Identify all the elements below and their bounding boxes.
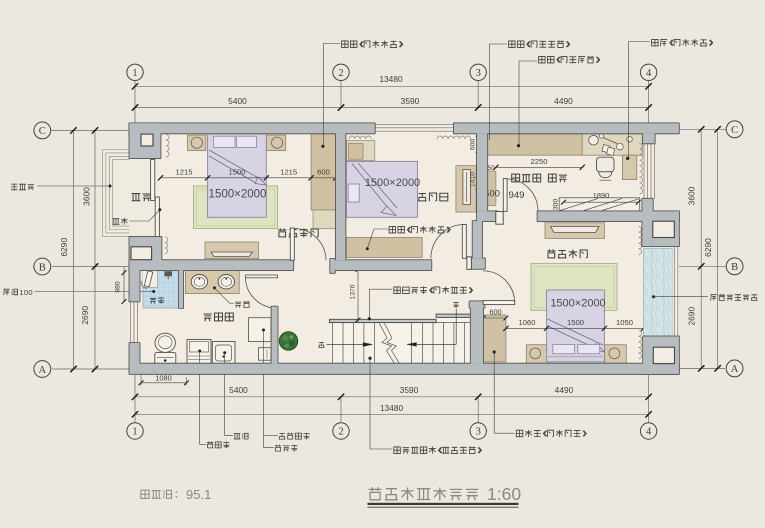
svg-text:13480: 13480 bbox=[380, 403, 404, 413]
svg-text:1370: 1370 bbox=[350, 284, 357, 299]
svg-text:2: 2 bbox=[338, 427, 343, 438]
svg-text:3: 3 bbox=[476, 68, 481, 79]
svg-text:600: 600 bbox=[469, 139, 476, 151]
svg-text:3600: 3600 bbox=[687, 186, 697, 205]
svg-text:6290: 6290 bbox=[703, 238, 713, 257]
svg-text:A: A bbox=[731, 364, 739, 375]
svg-text:1215: 1215 bbox=[176, 168, 193, 177]
svg-text:4490: 4490 bbox=[554, 96, 573, 106]
svg-text:1215: 1215 bbox=[280, 168, 297, 177]
svg-text:0: 0 bbox=[28, 288, 32, 297]
svg-text:3590: 3590 bbox=[401, 96, 420, 106]
svg-text:1500×2000: 1500×2000 bbox=[365, 177, 420, 189]
svg-text:6290: 6290 bbox=[59, 238, 69, 257]
svg-text:600: 600 bbox=[317, 168, 330, 177]
svg-text:1410: 1410 bbox=[469, 172, 476, 187]
svg-text:B: B bbox=[731, 262, 738, 273]
svg-text:1500×2000: 1500×2000 bbox=[209, 189, 267, 201]
svg-text:2690: 2690 bbox=[80, 306, 90, 325]
svg-text:4: 4 bbox=[646, 427, 652, 438]
svg-text:B: B bbox=[39, 262, 46, 273]
svg-text:1500×2000: 1500×2000 bbox=[550, 298, 605, 310]
svg-text:5400: 5400 bbox=[228, 96, 247, 106]
svg-text:880: 880 bbox=[115, 281, 122, 293]
svg-text:2690: 2690 bbox=[687, 307, 697, 326]
svg-text:600: 600 bbox=[489, 308, 501, 317]
svg-text:1890: 1890 bbox=[593, 191, 609, 200]
svg-text:1500: 1500 bbox=[567, 318, 584, 327]
svg-text:1: 1 bbox=[19, 288, 23, 297]
svg-text:95.1: 95.1 bbox=[186, 487, 211, 502]
svg-text:4: 4 bbox=[646, 68, 652, 79]
svg-text:1080: 1080 bbox=[155, 374, 171, 383]
svg-text:3590: 3590 bbox=[400, 385, 419, 395]
svg-text:C: C bbox=[731, 125, 738, 136]
svg-text:2250: 2250 bbox=[531, 157, 548, 166]
svg-text:1:60: 1:60 bbox=[487, 484, 521, 504]
svg-text:1: 1 bbox=[132, 427, 137, 438]
svg-text:949: 949 bbox=[508, 190, 524, 201]
svg-text:1500: 1500 bbox=[229, 168, 246, 177]
svg-text:2: 2 bbox=[338, 68, 343, 79]
svg-text:3600: 3600 bbox=[82, 187, 92, 206]
svg-text:1: 1 bbox=[132, 68, 137, 79]
svg-text:13480: 13480 bbox=[379, 74, 403, 84]
svg-text:5400: 5400 bbox=[229, 385, 248, 395]
svg-text:300: 300 bbox=[553, 199, 560, 211]
svg-text:C: C bbox=[39, 126, 46, 137]
svg-text:1060: 1060 bbox=[519, 318, 536, 327]
svg-text:1050: 1050 bbox=[616, 318, 633, 327]
svg-text:4490: 4490 bbox=[555, 385, 574, 395]
svg-text:A: A bbox=[39, 365, 47, 376]
svg-text:3: 3 bbox=[476, 427, 481, 438]
